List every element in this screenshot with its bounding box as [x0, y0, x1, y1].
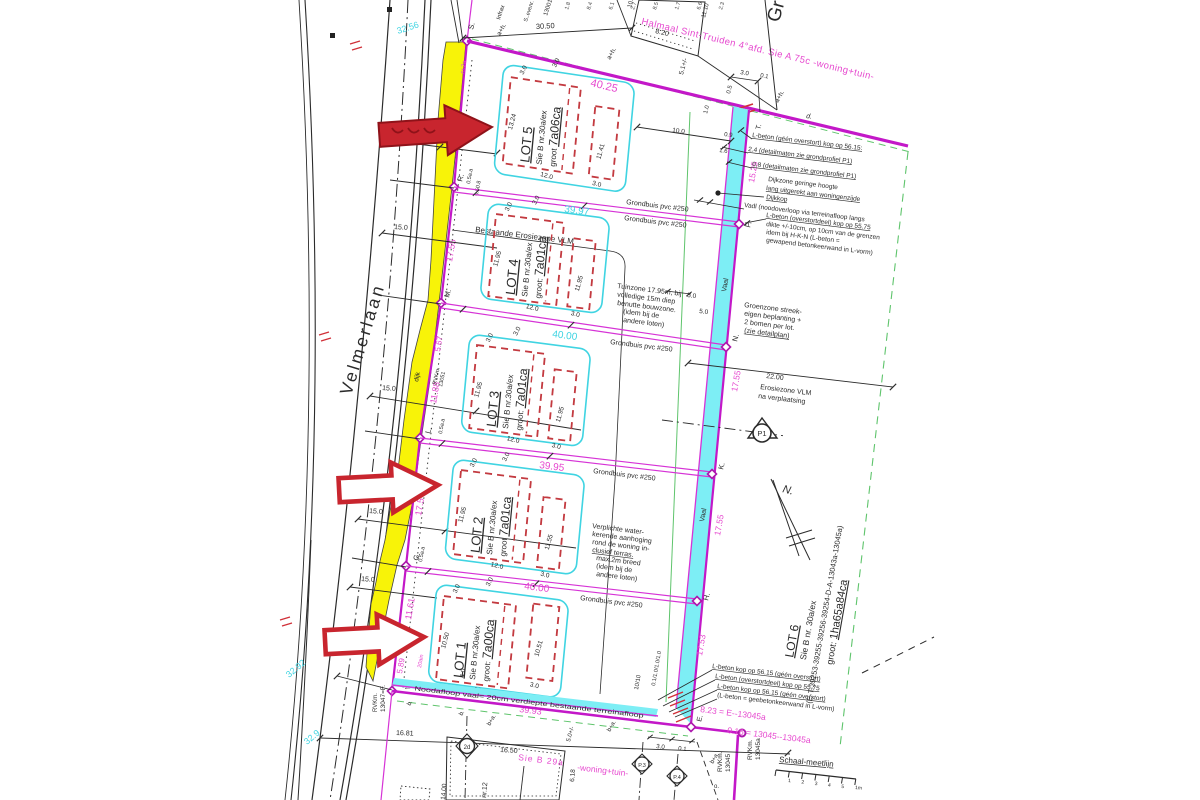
svg-text:15.0: 15.0 [361, 576, 375, 584]
svg-text:1.6: 1.6 [719, 148, 729, 155]
svg-text:1m: 1m [855, 785, 862, 792]
svg-text:15.0: 15.0 [382, 385, 396, 393]
svg-text:o.: o. [714, 784, 719, 790]
svg-text:RVKm.: RVKm. [373, 693, 379, 712]
svg-text:P.3: P.3 [638, 763, 646, 769]
svg-text:14.00: 14.00 [440, 783, 448, 800]
svg-text:nr.12: nr.12 [481, 782, 489, 798]
svg-text:5.0: 5.0 [687, 292, 697, 300]
svg-text:2d: 2d [464, 745, 471, 751]
svg-text:0.9: 0.9 [724, 132, 734, 139]
svg-text:0.1: 0.1 [678, 746, 688, 753]
svg-text:16.81: 16.81 [396, 730, 414, 738]
svg-text:d.: d. [806, 113, 813, 121]
svg-text:13045: 13045 [725, 754, 732, 772]
svg-text:P.4: P.4 [673, 775, 681, 781]
svg-text:30.50: 30.50 [536, 21, 555, 31]
svg-text:RVKm.: RVKm. [747, 739, 754, 760]
svg-text:5.0: 5.0 [699, 308, 709, 316]
svg-text:13045a: 13045a [755, 738, 762, 760]
svg-text:15.0: 15.0 [369, 508, 383, 516]
svg-text:6.18: 6.18 [569, 769, 577, 783]
svg-text:13047=F.: 13047=F. [380, 685, 387, 712]
svg-text:15.0: 15.0 [394, 224, 408, 232]
svg-text:16.50: 16.50 [500, 747, 518, 755]
svg-text:P1: P1 [757, 429, 766, 438]
